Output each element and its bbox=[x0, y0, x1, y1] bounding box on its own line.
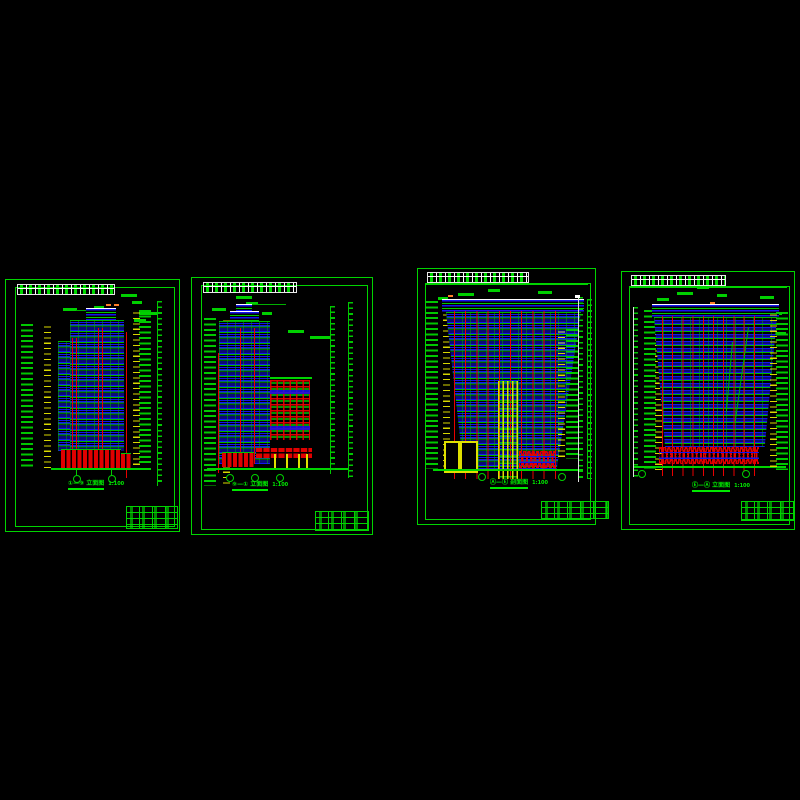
elevator-core bbox=[498, 381, 518, 479]
drawing-sheet-1[interactable]: ①—⑨ 立面图1:100 bbox=[5, 279, 180, 532]
title-block bbox=[315, 511, 369, 531]
podium-red-slabs bbox=[256, 448, 312, 458]
drawing-sheet-2[interactable]: ⑨—① 立面图1:100 bbox=[191, 277, 373, 535]
frame-top-bar bbox=[426, 283, 588, 285]
drawing-scale: 1:100 bbox=[532, 480, 548, 486]
level-marks-left bbox=[21, 324, 51, 470]
yellow-column bbox=[298, 454, 300, 468]
red-column-line bbox=[102, 328, 103, 450]
sheet-3-revision-table bbox=[427, 272, 529, 283]
annotation-note bbox=[458, 293, 474, 296]
drawing-title-text: ①—⑨ 立面图 bbox=[68, 480, 104, 490]
annotation-note bbox=[697, 286, 709, 289]
level-marks-right bbox=[558, 329, 578, 459]
cad-model-space: ①—⑨ 立面图1:100 bbox=[0, 0, 800, 800]
annotation-note bbox=[677, 292, 693, 295]
annotation-note bbox=[212, 308, 226, 311]
podium-blue-band bbox=[270, 426, 310, 430]
drawing-scale: 1:100 bbox=[734, 483, 750, 489]
annotation-note bbox=[121, 294, 137, 297]
yellow-column bbox=[286, 454, 288, 468]
drawing-title-2: ⑨—① 立面图1:100 bbox=[232, 481, 288, 489]
annotation-note bbox=[288, 330, 304, 333]
podium-blue-band bbox=[270, 390, 310, 394]
drawing-sheet-3[interactable]: Ⓐ—Ⓔ 剖面图1:100 bbox=[417, 268, 596, 525]
annotation-note bbox=[132, 301, 142, 304]
drawing-title-4: Ⓔ—Ⓐ 立面图1:100 bbox=[692, 482, 750, 490]
level-marks-right bbox=[770, 312, 788, 470]
drawing-scale: 1:100 bbox=[108, 481, 124, 487]
drawing-title-text: Ⓔ—Ⓐ 立面图 bbox=[692, 482, 730, 492]
podium-roof-line bbox=[270, 377, 312, 379]
drawing-title-text: ⑨—① 立面图 bbox=[232, 481, 268, 491]
base-red-detail bbox=[222, 452, 254, 467]
podium-red-step bbox=[121, 453, 131, 469]
red-hatch-band bbox=[659, 447, 759, 464]
title-block bbox=[741, 501, 795, 521]
dimension-string bbox=[578, 297, 585, 482]
grid-bubble bbox=[478, 473, 486, 481]
red-column-line bbox=[240, 328, 241, 464]
sheet-1-revision-table bbox=[17, 284, 115, 295]
tower-facade bbox=[70, 320, 124, 451]
red-column-line bbox=[254, 328, 255, 464]
title-block bbox=[541, 501, 609, 519]
red-column-line bbox=[76, 338, 77, 450]
annotation-note bbox=[657, 298, 669, 301]
annotation-note bbox=[760, 296, 774, 299]
red-column-line bbox=[72, 338, 73, 450]
drawing-title-1: ①—⑨ 立面图1:100 bbox=[68, 480, 124, 488]
annotation-note bbox=[717, 294, 727, 297]
tower-left-wing bbox=[58, 341, 70, 451]
ground-line bbox=[51, 468, 151, 470]
ground-line bbox=[433, 469, 583, 471]
red-column-line bbox=[218, 353, 219, 473]
annotation-note bbox=[538, 291, 552, 294]
orange-dash bbox=[448, 295, 453, 297]
tower-facade bbox=[219, 321, 270, 464]
sheet-4-revision-table bbox=[631, 275, 726, 286]
level-marks-right bbox=[133, 310, 151, 466]
ground-line bbox=[634, 466, 786, 468]
yellow-column bbox=[274, 454, 276, 468]
annotation-note bbox=[262, 312, 272, 315]
dimension-string bbox=[157, 301, 164, 486]
drawing-scale: 1:100 bbox=[272, 482, 288, 488]
drawing-title-3: Ⓐ—Ⓔ 剖面图1:100 bbox=[490, 479, 548, 487]
orange-dash bbox=[114, 304, 119, 306]
grid-bubble bbox=[742, 470, 750, 478]
dimension-string bbox=[587, 299, 594, 479]
red-column-line bbox=[98, 328, 99, 450]
leader-line bbox=[252, 304, 286, 305]
drawing-sheet-4[interactable]: Ⓔ—Ⓐ 立面图1:100 bbox=[621, 271, 795, 530]
drawing-title-text: Ⓐ—Ⓔ 剖面图 bbox=[490, 479, 528, 489]
annotation-note bbox=[488, 289, 500, 292]
annotation-note bbox=[236, 296, 252, 299]
yellow-column bbox=[306, 454, 308, 468]
orange-dash bbox=[106, 304, 111, 306]
sheet-2-revision-table bbox=[203, 282, 297, 293]
ground-line bbox=[207, 468, 349, 470]
dimension-string bbox=[348, 302, 355, 478]
podium-red bbox=[61, 449, 121, 469]
dimension-string-left bbox=[633, 307, 640, 477]
dimension-string bbox=[330, 306, 337, 474]
podium-grid bbox=[270, 380, 310, 440]
title-block bbox=[126, 506, 178, 529]
grid-bubble bbox=[558, 473, 566, 481]
dimension-flag bbox=[575, 295, 580, 298]
red-hatch bbox=[519, 451, 555, 468]
annotation-note bbox=[63, 308, 77, 311]
grid-bubble bbox=[638, 470, 646, 478]
annotation-note bbox=[310, 336, 330, 339]
